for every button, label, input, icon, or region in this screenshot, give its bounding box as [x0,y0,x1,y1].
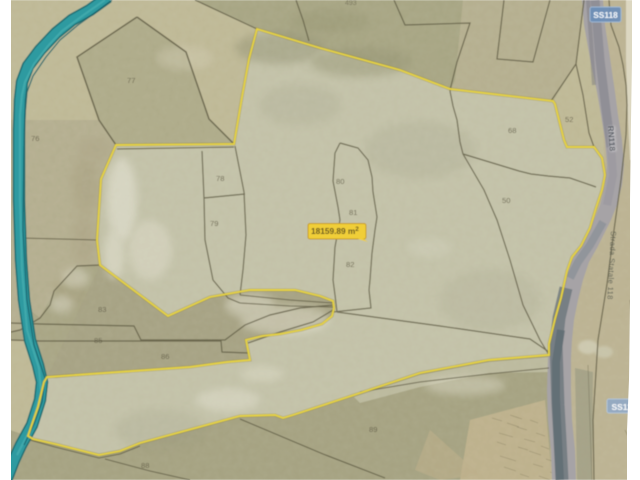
svg-text:79: 79 [210,219,218,228]
svg-text:83: 83 [98,305,106,314]
svg-text:78: 78 [216,174,224,183]
svg-text:RN118: RN118 [606,126,617,152]
svg-text:77: 77 [127,76,135,85]
svg-text:89: 89 [369,425,377,434]
svg-text:493: 493 [345,0,357,7]
svg-text:18159.89 m2: 18159.89 m2 [311,226,359,236]
svg-text:88: 88 [141,461,149,470]
svg-text:SS118: SS118 [593,10,618,20]
svg-text:86: 86 [161,352,169,361]
svg-text:82: 82 [346,260,354,269]
svg-text:76: 76 [31,134,39,143]
svg-text:68: 68 [508,126,516,135]
svg-text:50: 50 [502,196,510,205]
svg-text:80: 80 [336,177,344,186]
svg-text:85: 85 [94,336,102,345]
svg-text:81: 81 [349,208,357,217]
svg-text:52: 52 [565,115,573,124]
